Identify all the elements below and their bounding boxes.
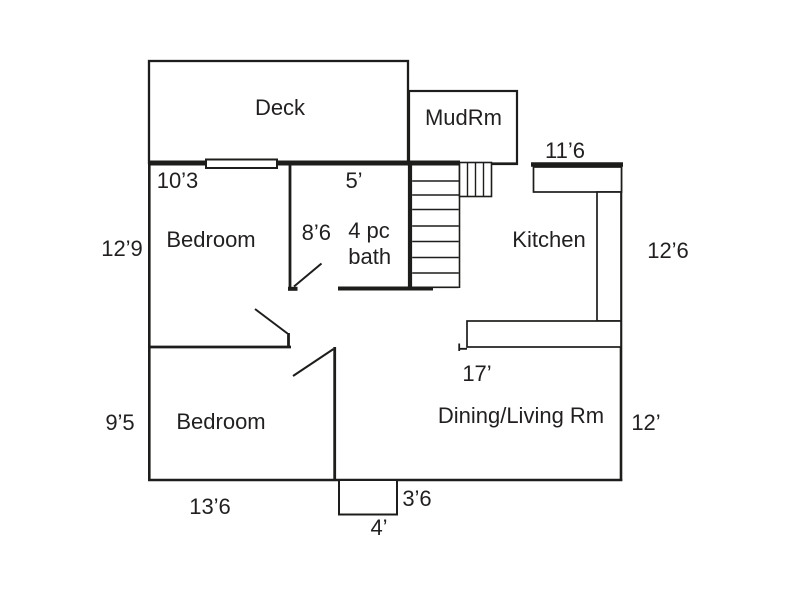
bedroom-upper-label: Bedroom bbox=[166, 227, 255, 252]
bath-label-line1: 4 pc bbox=[348, 218, 390, 243]
floor-plan-page: Deck MudRm Bedroom 4 pc bath Kitchen Bed… bbox=[0, 0, 800, 600]
dim-entry-steps-depth: 3’6 bbox=[402, 486, 431, 511]
dim-dining-depth: 12’ bbox=[631, 410, 660, 435]
dim-kitchen-width: 11’6 bbox=[545, 138, 585, 163]
floor-plan-drawing: Deck MudRm Bedroom 4 pc bath Kitchen Bed… bbox=[0, 0, 800, 600]
kitchen-counter-south bbox=[467, 321, 621, 347]
bath-door-swing bbox=[294, 264, 322, 287]
dim-bedroom-lower-width: 13’6 bbox=[189, 494, 231, 519]
dim-bedroom-lower-depth: 9’5 bbox=[105, 410, 134, 435]
dim-bedroom-upper-width: 10’3 bbox=[157, 168, 199, 193]
entry-steps bbox=[339, 480, 397, 515]
deck-label: Deck bbox=[255, 95, 306, 120]
dim-bath-depth: 8’6 bbox=[302, 220, 331, 245]
counter-end-detail bbox=[459, 344, 467, 352]
dim-bath-width: 5’ bbox=[345, 168, 362, 193]
dim-kitchen-depth: 12’6 bbox=[647, 238, 689, 263]
dim-bedroom-upper-depth: 12’9 bbox=[101, 236, 143, 261]
kitchen-counter-north bbox=[534, 167, 622, 192]
bedroom-lower-label: Bedroom bbox=[176, 409, 265, 434]
kitchen-label: Kitchen bbox=[512, 227, 585, 252]
kitchen-counter-east bbox=[597, 192, 621, 321]
bedroom-upper-door-swing bbox=[255, 309, 288, 334]
dining-living-label: Dining/Living Rm bbox=[438, 403, 604, 428]
bath-label-line2: bath bbox=[348, 244, 391, 269]
mudroom-label: MudRm bbox=[425, 105, 502, 130]
deck-window bbox=[206, 160, 277, 169]
bedroom-lower-door-swing bbox=[293, 349, 334, 376]
stair-treads bbox=[412, 181, 459, 287]
dim-dining-width: 17’ bbox=[462, 361, 491, 386]
dim-entry-steps-width: 4’ bbox=[370, 515, 387, 540]
